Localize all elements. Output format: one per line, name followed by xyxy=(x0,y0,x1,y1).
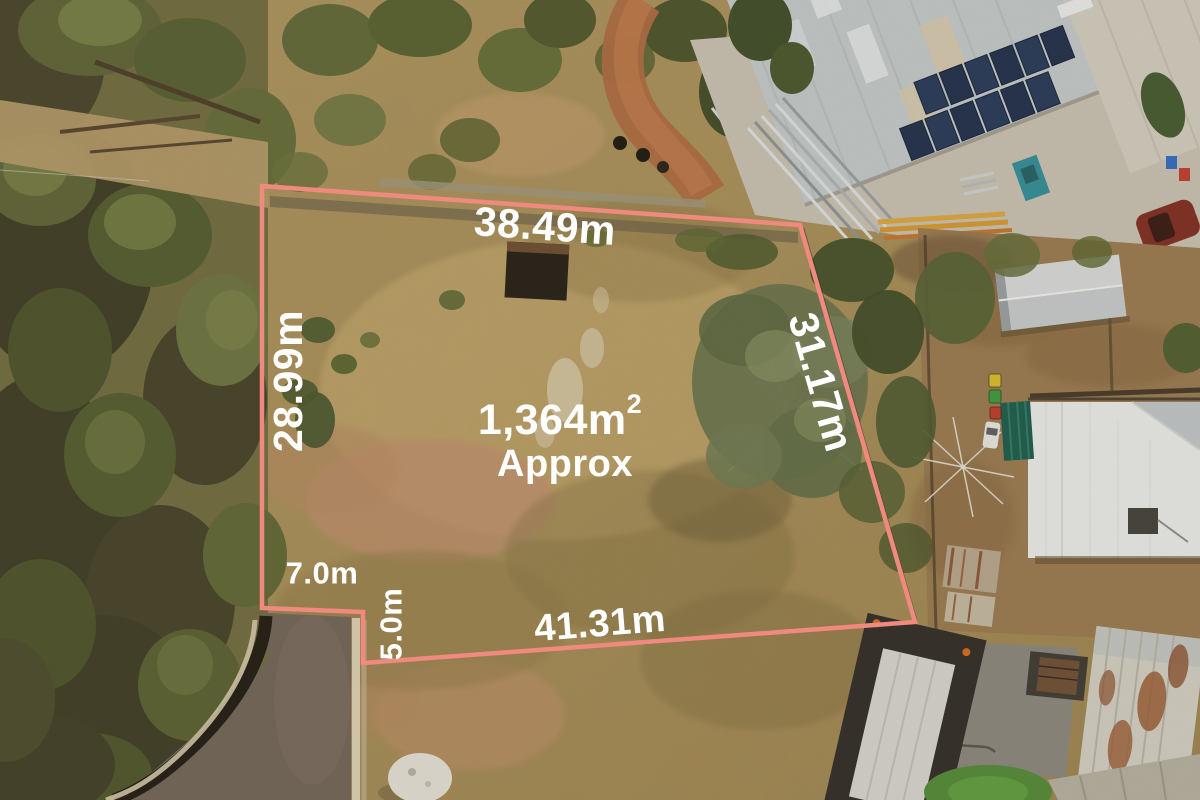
dim-notch-depth-label: 5.0m xyxy=(374,588,409,661)
area-label: 1,364m2 xyxy=(478,389,642,444)
dim-left-label: 28.99m xyxy=(265,310,311,452)
area-superscript: 2 xyxy=(627,389,643,419)
dim-notch-width-label: 7.0m xyxy=(286,556,359,591)
area-value: 1,364m xyxy=(478,396,627,444)
area-qualifier-label: Approx xyxy=(497,443,633,485)
aerial-photo: 38.49m 28.99m 31.17m 1,364m2 Approx 7.0m… xyxy=(0,0,1200,800)
aerial-photo-canvas: 38.49m 28.99m 31.17m 1,364m2 Approx 7.0m… xyxy=(0,0,1200,800)
